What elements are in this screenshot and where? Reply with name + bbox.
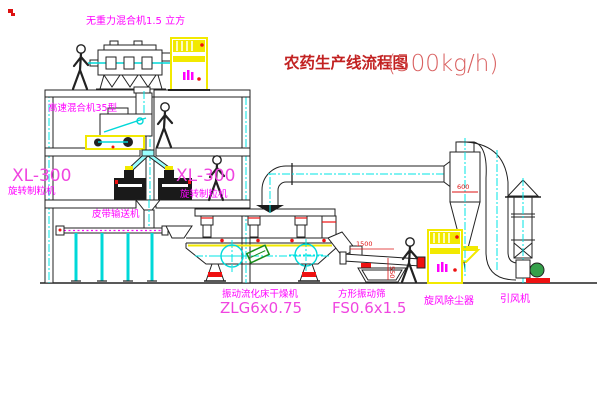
high-speed-mixer bbox=[86, 108, 152, 149]
title-capacity: (500kg/h) bbox=[387, 51, 498, 77]
label-gravity-mixer: 无重力混合机1.5 立方 bbox=[86, 14, 185, 27]
label-sieve-model: FS0.6x1.5 bbox=[332, 299, 406, 317]
dim-sieve-height: 550 bbox=[388, 266, 396, 278]
gravity-free-mixer bbox=[88, 41, 175, 93]
person-second-floor bbox=[157, 103, 172, 147]
corner-mark bbox=[8, 9, 15, 16]
label-granulator-left-model: XL-300 bbox=[12, 166, 71, 186]
indicator-dot bbox=[455, 235, 459, 239]
label-cyclone: 旋风除尘器 bbox=[424, 294, 474, 307]
control-cabinet-top bbox=[168, 38, 210, 90]
spring-mounts bbox=[201, 216, 307, 237]
fluid-bed-dryer bbox=[166, 209, 356, 281]
label-granulator-center-model: XL-300 bbox=[176, 166, 235, 186]
granulator-discharge-duct bbox=[136, 200, 160, 232]
cad-flow-diagram: 600 1500 bbox=[0, 0, 600, 403]
person-top-floor bbox=[73, 45, 88, 89]
belt-conveyor bbox=[56, 226, 168, 281]
exhaust-duct bbox=[256, 160, 452, 213]
diagram-canvas: 600 1500 bbox=[0, 0, 600, 403]
label-dryer-model: ZLG6x0.75 bbox=[220, 299, 302, 317]
label-belt-conveyor: 皮带输送机 bbox=[92, 208, 140, 220]
granulator-left bbox=[114, 166, 146, 200]
control-cabinet-right bbox=[428, 230, 462, 283]
label-granulator-left-name: 旋转制粒机 bbox=[8, 185, 56, 197]
dim-cyclone-diameter: 600 bbox=[457, 183, 469, 191]
indicator-dot bbox=[200, 43, 204, 47]
label-speed-mixer: 高速混合机35型 bbox=[48, 102, 118, 114]
label-granulator-center-name: 旋转制粒机 bbox=[180, 188, 228, 200]
dryer-feet bbox=[204, 264, 320, 281]
induced-draft-fan bbox=[516, 260, 550, 283]
label-fan: 引风机 bbox=[500, 292, 530, 305]
dim-sieve-width: 1500 bbox=[356, 240, 373, 248]
center-mark-right bbox=[289, 239, 323, 271]
drawing-title: 农药生产线流程图 (500kg/h) bbox=[283, 51, 498, 77]
